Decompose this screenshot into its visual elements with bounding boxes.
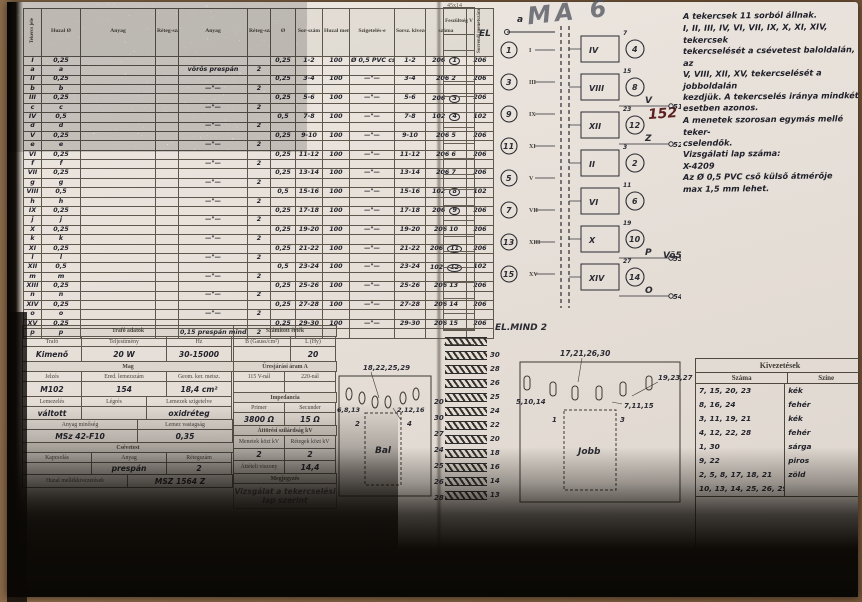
table-cell: I: [24, 56, 42, 65]
table-cell: —"—: [350, 282, 395, 291]
col-tekercs-jele: Tekercs jele: [24, 9, 42, 57]
table-cell: 0,5: [42, 113, 81, 122]
hatch-bar: [445, 337, 487, 346]
feszultseg-row: [444, 252, 474, 268]
table-cell: 21-22: [395, 244, 426, 253]
table-cell: 29-30: [395, 319, 426, 328]
table-row: XIII0,250,2525-26100—"—25-26206 13206: [24, 282, 494, 291]
bal-bobbin-name: Bal: [375, 446, 392, 456]
table-cell: —"—: [350, 131, 395, 140]
table-cell: [395, 197, 426, 206]
table-cell: [179, 56, 248, 65]
table-cell: [81, 300, 156, 309]
table-cell: 0,25: [271, 169, 296, 178]
table-row: mm—"—2: [24, 272, 494, 281]
table-cell: [323, 178, 350, 187]
table-cell: [323, 84, 350, 93]
table-cell: h: [42, 197, 81, 206]
table-cell: [156, 103, 179, 112]
table-cell: [156, 169, 179, 178]
output-terminal-number: 54: [673, 293, 681, 301]
table-cell: [248, 300, 271, 309]
left-winding-roman: V: [529, 176, 534, 182]
feszultseg-row: [444, 268, 474, 284]
feszultseg-header: Feszültség V: [444, 8, 474, 35]
table-cell: [81, 103, 156, 112]
col-szigeteles: Szigetelés-e: [350, 9, 395, 57]
terminal-strip-row: 26: [445, 376, 507, 390]
kivezetesek-col-szine: Színe: [788, 373, 862, 383]
terminal-strip-row: [445, 334, 507, 348]
trafo-value-2: 30-15000: [166, 346, 232, 362]
bal-terminal-number: 28: [434, 494, 444, 502]
table-cell: g: [42, 178, 81, 187]
table-cell: —"—: [350, 244, 395, 253]
block-pin-number: 19: [623, 220, 631, 227]
winding-block: [581, 226, 619, 252]
table-cell: [81, 282, 156, 291]
table-row: nn—"—2: [24, 291, 494, 300]
hatch-bar: [445, 421, 487, 430]
table-cell: [179, 300, 248, 309]
table-cell: —"—: [350, 207, 395, 216]
table-cell: [81, 75, 156, 84]
table-cell: —"—: [179, 310, 248, 319]
table-cell: —"—: [179, 216, 248, 225]
table-cell: 100: [323, 282, 350, 291]
kivezetesek-table: Kivezetések Száma Színe 7, 15, 20, 23kék…: [695, 358, 862, 556]
table-cell: 13-14: [395, 169, 426, 178]
table-cell: [156, 300, 179, 309]
col-kivezetes-jelei: Sorsz. kivezetés jelei: [395, 9, 426, 57]
table-cell: [156, 131, 179, 140]
note-line-6: A menetek szorosan egymás mellé teker-: [683, 113, 862, 138]
table-cell: [296, 254, 323, 263]
table-cell: vörös prespán: [179, 66, 248, 75]
table-cell: III: [24, 94, 42, 103]
table-cell: —"—: [350, 188, 395, 197]
table-cell: [271, 216, 296, 225]
table-cell: 100: [323, 75, 350, 84]
table-cell: —"—: [350, 75, 395, 84]
table-cell: 13-14: [296, 169, 323, 178]
terminal-number: 30: [490, 351, 500, 359]
block-terminal-number: 10: [629, 235, 641, 244]
bal-leg-right: 4: [407, 420, 412, 428]
table-cell: [296, 103, 323, 112]
table-cell: 100: [323, 131, 350, 140]
terminal-number: 28: [490, 365, 500, 373]
table-row: IV0,50,57-8100—"—7-8102 4102: [24, 113, 494, 122]
kivezetesek-col-szama: Száma: [696, 373, 788, 383]
jobb-upper-right-pins-label: 19,23,27: [658, 374, 693, 382]
scanned-document-scene: Tekercs jele Huzal Ø Anyag Réteg-szám An…: [0, 0, 862, 600]
table-cell: 2: [248, 160, 271, 169]
table-cell: [156, 113, 179, 122]
table-cell: j: [42, 216, 81, 225]
jobb-left-pins-label: 5,10,14: [516, 398, 546, 406]
table-cell: 5-6: [395, 94, 426, 103]
kivezetesek-szine: fehér: [785, 398, 862, 412]
table-cell: —"—: [179, 254, 248, 263]
kivezetesek-rows: 7, 15, 20, 23kék8, 16, 24fehér3, 11, 19,…: [696, 384, 862, 496]
kivezetesek-szine: kék: [785, 384, 862, 398]
table-cell: [81, 160, 156, 169]
winding-block: [581, 188, 619, 214]
feszultseg-row: [444, 35, 474, 51]
block-terminal-number: 12: [629, 121, 641, 130]
kivezetesek-szine: sárga: [785, 440, 862, 454]
table-cell: IX: [24, 207, 42, 216]
feszultseg-row: [444, 237, 474, 253]
table-cell: e: [24, 141, 42, 150]
trafo-value-0: M102: [22, 381, 82, 397]
table-cell: 2: [248, 216, 271, 225]
table-cell: XII: [24, 263, 42, 272]
table-cell: —"—: [350, 169, 395, 178]
table-cell: [179, 244, 248, 253]
table-cell: [395, 141, 426, 150]
table-cell: c: [24, 103, 42, 112]
table-cell: [248, 263, 271, 272]
table-cell: 0,25: [271, 225, 296, 234]
table-cell: 100: [323, 150, 350, 159]
table-cell: [81, 56, 156, 65]
table-cell: 11-12: [395, 150, 426, 159]
table-cell: l: [42, 254, 81, 263]
kivezetesek-row: 9, 22piros: [696, 454, 862, 468]
terminal-strip-row: 20: [445, 432, 507, 446]
table-cell: [350, 235, 395, 244]
table-cell: 100: [323, 207, 350, 216]
table-cell: a: [42, 66, 81, 75]
kivezetesek-title: Kivezetések: [696, 359, 862, 373]
table-cell: II: [24, 75, 42, 84]
table-cell: [296, 66, 323, 75]
table-cell: [350, 254, 395, 263]
jobb-top-pins-label: 17,21,26,30: [560, 349, 610, 358]
table-cell: —"—: [179, 160, 248, 169]
table-cell: 0,25: [271, 75, 296, 84]
szamitott-value-0: [233, 346, 291, 362]
table-cell: [179, 263, 248, 272]
table-cell: 0,25: [271, 300, 296, 309]
table-cell: [81, 178, 156, 187]
table-cell: [81, 263, 156, 272]
table-cell: n: [24, 291, 42, 300]
table-cell: [296, 235, 323, 244]
table-cell: [296, 84, 323, 93]
jobb-leg-right: 3: [620, 416, 625, 424]
table-cell: [179, 188, 248, 197]
table-cell: 100: [323, 244, 350, 253]
table-cell: XIV: [24, 300, 42, 309]
note-line-11: max 1,5 mm lehet.: [683, 182, 862, 195]
table-cell: —"—: [179, 291, 248, 300]
trafo-value-1: 0,35: [137, 429, 233, 443]
table-cell: [81, 216, 156, 225]
hatch-bar: [445, 365, 487, 374]
table-row: III0,250,255-6100—"—5-6206 3206: [24, 94, 494, 103]
table-cell: [296, 178, 323, 187]
feszultseg-row: [444, 299, 474, 315]
table-cell: 2: [248, 254, 271, 263]
table-cell: [81, 141, 156, 150]
feszultseg-row: [444, 206, 474, 222]
table-cell: 2: [248, 141, 271, 150]
table-cell: n: [42, 291, 81, 300]
terminal-number: 25: [490, 393, 500, 401]
table-cell: XIII: [24, 282, 42, 291]
left-terminal-number: 15: [503, 270, 515, 279]
table-cell: [248, 244, 271, 253]
block-terminal-number: 8: [632, 83, 638, 92]
terminal-strip-row: 18: [445, 446, 507, 460]
table-cell: VII: [24, 169, 42, 178]
kivezetesek-szama: 7, 15, 20, 23: [696, 384, 785, 398]
table-cell: [395, 160, 426, 169]
left-terminal-number: 13: [503, 238, 515, 247]
output-wire-letter: P: [645, 248, 652, 258]
winding-block-roman: VIII: [589, 84, 604, 93]
table-cell: [248, 56, 271, 65]
table-cell: 2: [248, 291, 271, 300]
table-cell: 100: [323, 300, 350, 309]
hatch-bar: [445, 407, 487, 416]
table-row: VIII0,50,515-16100—"—15-16102 8102: [24, 188, 494, 197]
table-cell: [271, 197, 296, 206]
table-cell: [179, 131, 248, 140]
feszultseg-row: [444, 51, 474, 67]
table-cell: 0,25: [42, 225, 81, 234]
bal-leg-left: 2: [355, 420, 360, 428]
table-cell: [156, 66, 179, 75]
table-row: ff—"—2: [24, 160, 494, 169]
table-cell: [350, 178, 395, 187]
table-row: ll—"—2: [24, 254, 494, 263]
szamitott-ertek-table: Számított érték B (Gauss/cm²)L (Hy) 20 Ü…: [234, 326, 338, 509]
table-cell: f: [24, 160, 42, 169]
feszultseg-row: [444, 314, 474, 330]
table-cell: [81, 169, 156, 178]
table-cell: 1-2: [296, 56, 323, 65]
table-cell: —"—: [350, 300, 395, 309]
left-terminal-number: 1: [506, 46, 512, 55]
table-row: XII0,50,523-24100—"—23-24102 12102: [24, 263, 494, 272]
table-row: dd—"—2: [24, 122, 494, 131]
table-row: bb—"—2: [24, 84, 494, 93]
trafo-adatok-table: Trafó adatok TrafóTeljesítményHz Kimenő2…: [23, 326, 235, 488]
table-cell: [271, 235, 296, 244]
huzal-mellek-label: Huzal mellékkivezetések: [22, 474, 128, 488]
table-row: jj—"—2: [24, 216, 494, 225]
table-cell: [81, 254, 156, 263]
feszultseg-row: [444, 144, 474, 160]
table-cell: [81, 272, 156, 281]
table-cell: [323, 122, 350, 131]
kivezetesek-szine: [785, 482, 862, 496]
table-cell: [248, 94, 271, 103]
table-cell: 15-16: [395, 188, 426, 197]
hatch-bar: [445, 491, 487, 500]
terminal-number: 22: [490, 421, 500, 429]
table-cell: [350, 160, 395, 169]
table-row: XI0,250,2521-22100—"—21-22206 11206: [24, 244, 494, 253]
table-cell: Ø 0,5 PVC cső: [350, 56, 395, 65]
table-cell: [81, 291, 156, 300]
szamitott-value-1: 20: [290, 346, 336, 362]
table-cell: [271, 84, 296, 93]
table-cell: [81, 235, 156, 244]
block-pin-number: 3: [623, 144, 627, 151]
table-cell: [179, 207, 248, 216]
table-cell: 100: [323, 56, 350, 65]
terminal-number: 26: [490, 379, 500, 387]
feszultseg-column: Feszültség V: [443, 7, 475, 331]
table-cell: [350, 103, 395, 112]
table-row: II0,250,253-4100—"—3-4206 2206: [24, 75, 494, 84]
table-row: VI0,250,2511-12100—"—11-12206 6206: [24, 150, 494, 159]
table-cell: 3-4: [395, 75, 426, 84]
table-cell: [81, 66, 156, 75]
table-cell: m: [42, 272, 81, 281]
table-cell: [323, 216, 350, 225]
block-pin-number: 27: [623, 258, 632, 265]
table-cell: 2: [248, 103, 271, 112]
table-cell: [395, 216, 426, 225]
table-cell: e: [42, 141, 81, 150]
kivezetesek-szine: zöld: [785, 468, 862, 482]
table-cell: [248, 169, 271, 178]
table-cell: [350, 272, 395, 281]
table-cell: 0,25: [42, 94, 81, 103]
table-cell: [81, 207, 156, 216]
jobb-leg-left: 1: [552, 416, 557, 424]
table-cell: 0,25: [271, 56, 296, 65]
kivezetesek-szama: 10, 13, 14, 25, 26, 29: [696, 482, 785, 496]
table-cell: [156, 160, 179, 169]
trafo-value-1: 154: [81, 381, 167, 397]
table-cell: [81, 197, 156, 206]
table-cell: g: [24, 178, 42, 187]
bal-terminal-number: 25: [434, 462, 444, 470]
table-cell: l: [24, 254, 42, 263]
table-cell: 0,25: [42, 56, 81, 65]
table-cell: [248, 188, 271, 197]
table-cell: 7-8: [395, 113, 426, 122]
kivezetesek-szama: 4, 12, 22, 28: [696, 426, 785, 440]
table-cell: 25-26: [296, 282, 323, 291]
corner-note: 45x14: [447, 3, 462, 9]
table-row: I0,250,251-2100Ø 0,5 PVC cső1-2206 1206: [24, 56, 494, 65]
table-cell: —"—: [350, 113, 395, 122]
table-row: IX0,250,2517-18100—"—17-18206 9206: [24, 207, 494, 216]
table-cell: [296, 310, 323, 319]
left-winding-roman: III: [529, 80, 537, 86]
table-cell: [271, 141, 296, 150]
table-cell: [156, 291, 179, 300]
table-cell: [156, 310, 179, 319]
table-cell: 0,25: [42, 150, 81, 159]
kivezetesek-szine: piros: [785, 454, 862, 468]
output-wire-letter: Z: [644, 134, 652, 144]
table-cell: k: [42, 235, 81, 244]
winding-table-body: I0,250,251-2100Ø 0,5 PVC cső1-2206 1206a…: [24, 56, 494, 338]
table-cell: 27-28: [395, 300, 426, 309]
table-cell: [81, 244, 156, 253]
table-cell: 3-4: [296, 75, 323, 84]
table-cell: [350, 141, 395, 150]
table-cell: 0,25: [42, 169, 81, 178]
jobb-bobbin-name: Jobb: [576, 447, 601, 457]
left-terminal-number: 5: [506, 174, 512, 183]
table-cell: h: [24, 197, 42, 206]
left-winding-roman: XV: [529, 272, 538, 278]
table-cell: 0,25: [42, 75, 81, 84]
table-row: ee—"—2: [24, 141, 494, 150]
table-cell: [271, 66, 296, 75]
table-cell: d: [24, 122, 42, 131]
bal-top-pins-label: 18,22,25,29: [363, 364, 410, 372]
feszultseg-row: [444, 159, 474, 175]
table-cell: [296, 197, 323, 206]
table-cell: 100: [323, 188, 350, 197]
table-cell: [395, 178, 426, 187]
table-row: XIV0,250,2527-28100—"—27-28206 14206: [24, 300, 494, 309]
table-cell: —"—: [179, 235, 248, 244]
kivezetesek-footer-space: [696, 496, 862, 555]
table-cell: [296, 122, 323, 131]
table-cell: 100: [323, 225, 350, 234]
kivezetesek-row: 7, 15, 20, 23kék: [696, 384, 862, 398]
table-cell: 19-20: [395, 225, 426, 234]
kivezetesek-row: 2, 5, 8, 17, 18, 21zöld: [696, 468, 862, 482]
note-line-3: V, VIII, XII, XV, tekercselését a jobbol…: [683, 67, 862, 92]
table-cell: [395, 103, 426, 112]
table-cell: [248, 282, 271, 291]
table-cell: d: [42, 122, 81, 131]
hatch-bar: [445, 393, 487, 402]
table-cell: [271, 254, 296, 263]
bal-terminal-number: 27: [434, 430, 444, 438]
table-row: cc—"—2: [24, 103, 494, 112]
terminal-strip-row: 25: [445, 390, 507, 404]
output-terminal-number: 51: [673, 103, 681, 111]
table-cell: 1-2: [395, 56, 426, 65]
table-row: X0,250,2519-20100—"—19-20206 10206: [24, 225, 494, 234]
left-terminal-number: 7: [506, 206, 512, 215]
table-cell: 2: [248, 272, 271, 281]
left-winding-roman: I: [529, 48, 532, 54]
table-cell: 9-10: [395, 131, 426, 140]
table-cell: [156, 94, 179, 103]
kivezetesek-szine: kék: [785, 412, 862, 426]
table-cell: 0,25: [42, 300, 81, 309]
table-cell: [248, 207, 271, 216]
col-huzal: Huzal Ø: [42, 9, 81, 57]
table-cell: [296, 272, 323, 281]
table-cell: [350, 310, 395, 319]
feszultseg-row: [444, 66, 474, 82]
hatch-bar: [445, 435, 487, 444]
table-cell: 100: [323, 169, 350, 178]
table-cell: 21-22: [296, 244, 323, 253]
table-cell: [395, 254, 426, 263]
table-cell: [271, 160, 296, 169]
bal-terminal-number: 30: [434, 414, 444, 422]
block-pin-number: 15: [623, 68, 631, 75]
table-cell: VIII: [24, 188, 42, 197]
